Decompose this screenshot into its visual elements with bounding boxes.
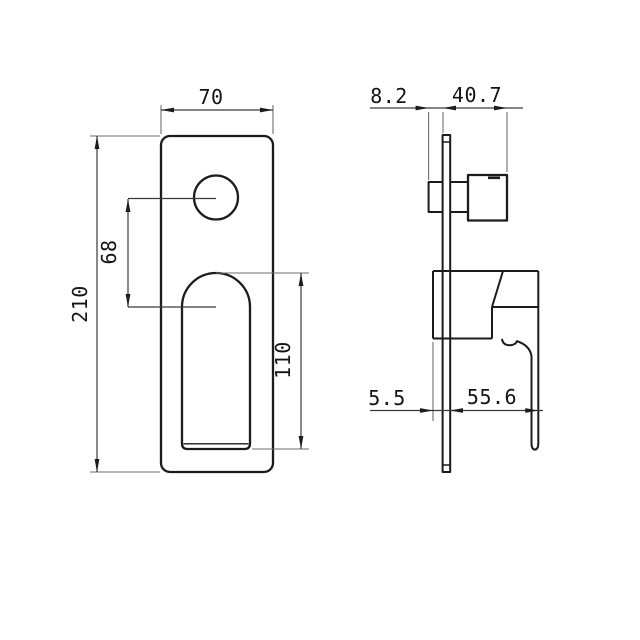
arrowhead-plate-right — [450, 408, 463, 413]
dim-cutout-label: 110 — [271, 341, 295, 379]
arrowhead-bottom — [299, 436, 304, 449]
lever-hub-detail — [502, 339, 517, 345]
arrowhead-top — [126, 199, 131, 212]
faceplate-outline — [161, 136, 273, 472]
dim-offset-label: 68 — [97, 239, 121, 264]
lever-curve — [517, 341, 532, 356]
valve-body-upper — [429, 182, 443, 212]
extension-lines — [216, 273, 309, 449]
arrowhead-bottom — [126, 294, 131, 307]
lever-handle — [532, 271, 539, 450]
side-view: 8.2 40.7 5.5 55.6 — [368, 83, 543, 472]
arrowhead-top — [299, 273, 304, 286]
arrowhead-body — [416, 106, 429, 111]
extension-lines — [90, 136, 160, 472]
arrowhead-plate-left — [420, 408, 433, 413]
dim-lever-projection-label: 55.6 — [467, 385, 517, 409]
dim-thickness-5-5-and-55-6: 5.5 55.6 — [368, 342, 543, 421]
lever-chamfer — [492, 271, 503, 307]
dim-offset-68: 68 — [97, 199, 216, 308]
extension-lines — [429, 112, 507, 180]
dim-knob-projection-label: 40.7 — [452, 83, 502, 107]
dim-plate-thickness-label: 5.5 — [368, 386, 406, 410]
dim-height-210: 210 — [68, 136, 160, 472]
dim-cutout-110: 110 — [216, 273, 309, 449]
dim-width-label: 70 — [198, 85, 223, 109]
handle-knob — [468, 175, 507, 221]
handle-hole-circle — [194, 176, 238, 220]
arrowhead-left — [161, 108, 174, 113]
dim-body-depth-label: 8.2 — [370, 84, 408, 108]
arrowhead-right — [260, 108, 273, 113]
handle-stem — [450, 182, 468, 212]
arrowhead-bottom — [95, 459, 100, 472]
faceplate-side — [443, 135, 451, 472]
faceplate-cap-lines — [443, 142, 451, 465]
extension-lines — [161, 105, 273, 134]
technical-drawing: 70 210 68 110 — [0, 0, 640, 640]
dim-width-70: 70 — [161, 85, 273, 134]
arrowhead-top — [95, 136, 100, 149]
dim-depth-8-2-and-40-7: 8.2 40.7 — [370, 83, 523, 180]
front-view: 70 210 68 110 — [68, 85, 309, 472]
dim-height-label: 210 — [68, 285, 92, 323]
handle-cutout — [182, 273, 250, 449]
